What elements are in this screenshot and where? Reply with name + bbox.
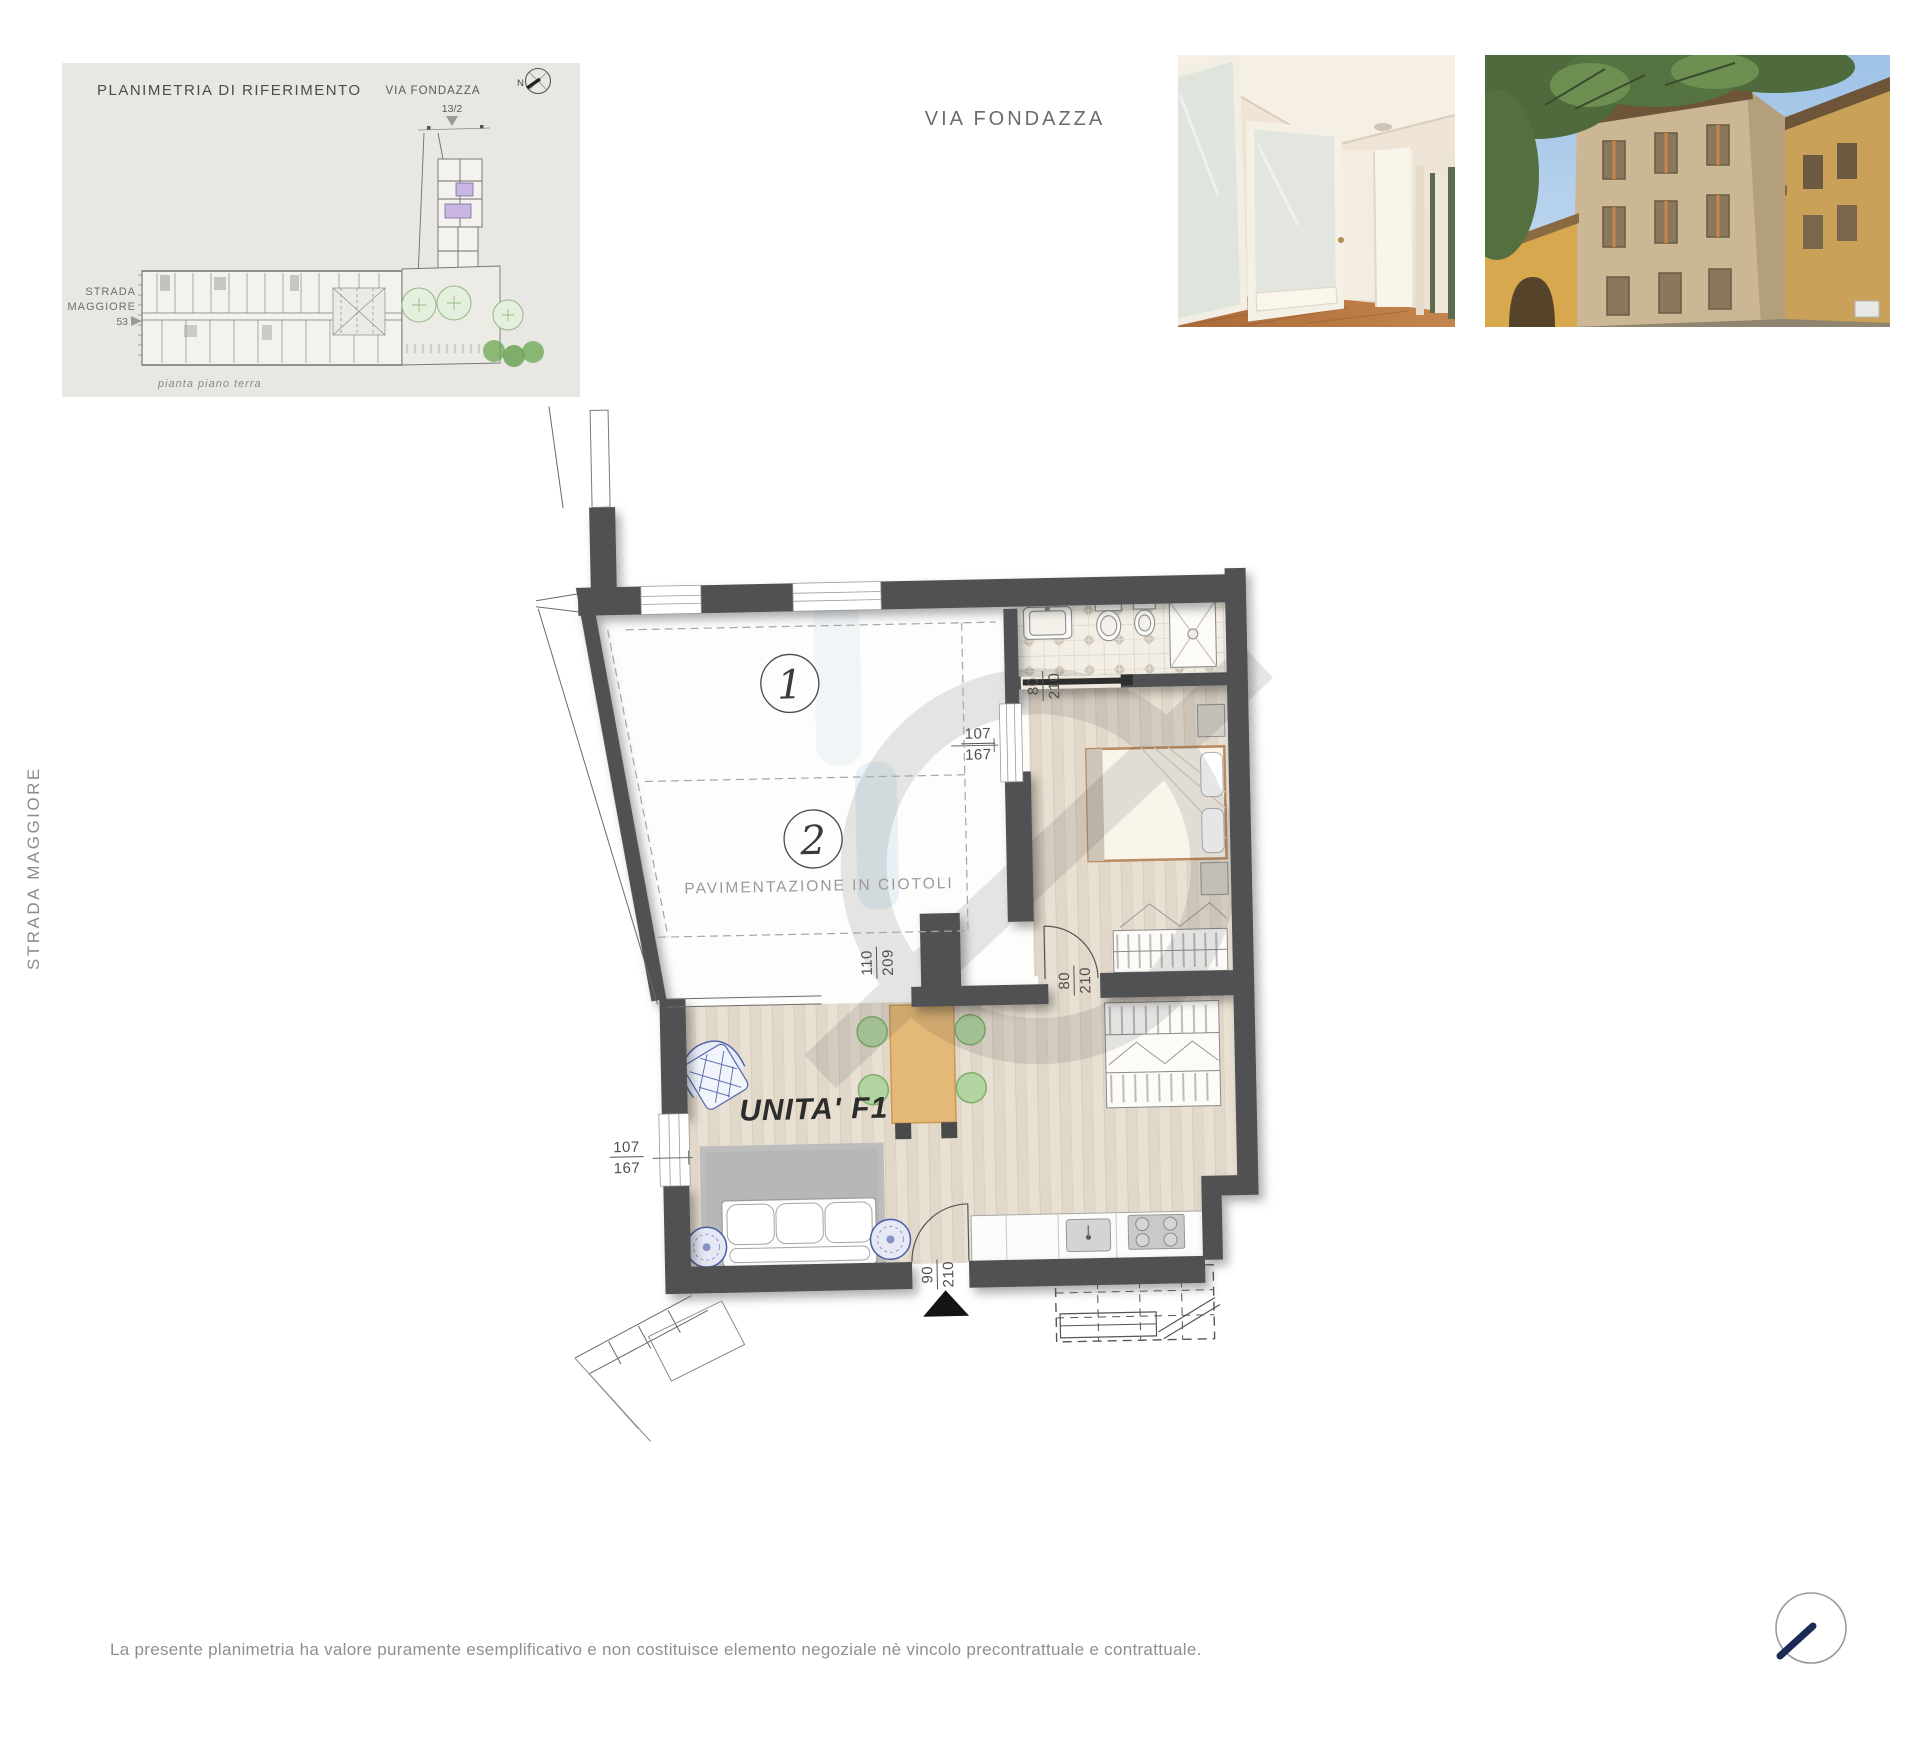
photo-interior bbox=[1178, 55, 1455, 327]
street-label-vertical: STRADA MAGGIORE bbox=[24, 750, 44, 970]
strada-number: 53 bbox=[116, 316, 128, 328]
strada-label-line2: MAGGIORE bbox=[67, 301, 136, 313]
page-location-title: VIA FONDAZZA bbox=[880, 108, 1150, 131]
svg-text:80: 80 bbox=[1025, 677, 1042, 695]
svg-text:167: 167 bbox=[965, 746, 992, 764]
svg-text:210: 210 bbox=[940, 1261, 958, 1288]
compass-icon: N bbox=[517, 69, 551, 94]
reference-plan-title: PLANIMETRIA DI RIFERIMENTO bbox=[97, 82, 362, 99]
photo-interior-scene bbox=[1178, 55, 1455, 327]
disclaimer-text: La presente planimetria ha valore purame… bbox=[110, 1640, 1510, 1660]
agency-compass-logo-icon bbox=[1768, 1586, 1854, 1672]
unit-label: UNITA' F1 bbox=[739, 1091, 889, 1127]
street-number-label: 13/2 bbox=[442, 103, 463, 115]
stove-icon bbox=[1128, 1214, 1185, 1249]
zone-1-number: 1 bbox=[777, 662, 803, 709]
reference-plan-panel: PLANIMETRIA DI RIFERIMENTO VIA FONDAZZA … bbox=[62, 63, 580, 397]
entrance-arrow bbox=[923, 1290, 970, 1317]
highlighted-unit-mini bbox=[456, 183, 473, 196]
strada-arrow bbox=[131, 316, 142, 326]
reference-mini-plan: PLANIMETRIA DI RIFERIMENTO VIA FONDAZZA … bbox=[62, 63, 580, 397]
svg-text:107: 107 bbox=[613, 1139, 640, 1157]
svg-text:90: 90 bbox=[919, 1266, 936, 1284]
photo-exterior-scene bbox=[1485, 55, 1890, 327]
svg-text:210: 210 bbox=[1077, 967, 1095, 994]
side-table bbox=[686, 1227, 727, 1268]
side-table bbox=[870, 1219, 911, 1260]
svg-text:210: 210 bbox=[1046, 672, 1064, 699]
zone-2-number: 2 bbox=[799, 818, 826, 865]
compass-north-label: N bbox=[517, 78, 524, 89]
kitchen bbox=[971, 1211, 1205, 1262]
strada-label-line1: STRADA bbox=[85, 286, 136, 298]
highlighted-unit-mini-2 bbox=[445, 204, 471, 218]
mini-plan-caption: pianta piano terra bbox=[157, 378, 262, 390]
svg-text:110: 110 bbox=[858, 950, 876, 976]
via-fondazza-label: VIA FONDAZZA bbox=[385, 85, 480, 97]
floor-plan: 1 2 PAVIMENTAZIONE IN CIOTOLI UNITA' F1 … bbox=[430, 380, 1290, 1460]
glass-door-right bbox=[1250, 125, 1344, 317]
street-entry-arrow bbox=[446, 116, 458, 126]
svg-text:209: 209 bbox=[879, 949, 897, 976]
svg-text:167: 167 bbox=[614, 1160, 641, 1178]
glass-door-left bbox=[1178, 57, 1244, 323]
photo-exterior bbox=[1485, 55, 1890, 327]
svg-text:80: 80 bbox=[1056, 972, 1073, 990]
floor-plan-drawing: 1 2 PAVIMENTAZIONE IN CIOTOLI UNITA' F1 … bbox=[430, 380, 1290, 1460]
brochure-page: PLANIMETRIA DI RIFERIMENTO VIA FONDAZZA … bbox=[0, 0, 1920, 1746]
svg-text:107: 107 bbox=[964, 725, 991, 743]
mini-plan-building bbox=[138, 266, 544, 367]
